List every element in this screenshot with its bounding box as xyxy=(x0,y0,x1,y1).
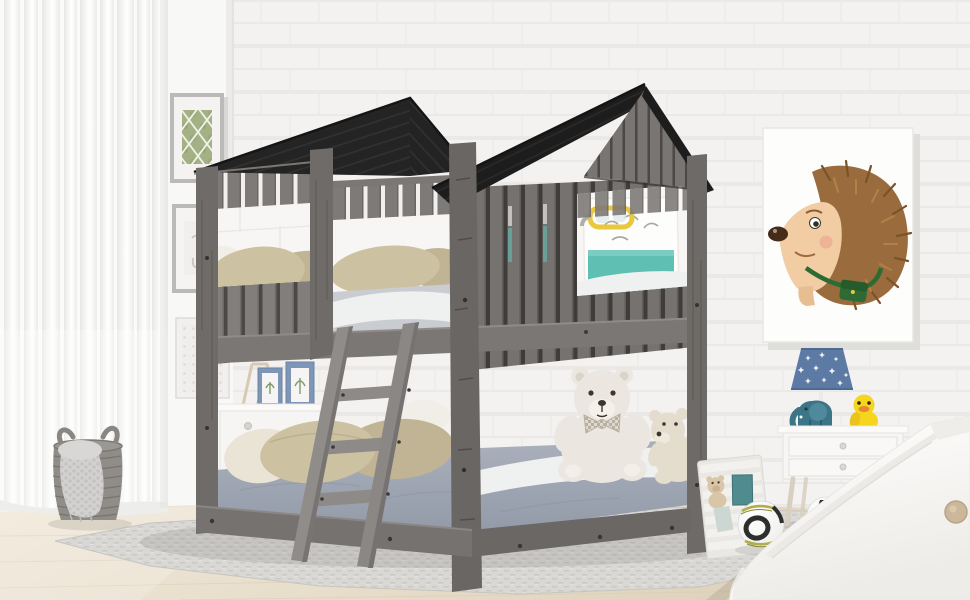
photo-frame-blue-1 xyxy=(258,368,282,408)
hedgehog-pupil xyxy=(813,221,819,227)
hedgehog-nose xyxy=(768,227,788,242)
elephant-eye xyxy=(804,407,807,410)
nose-highlight xyxy=(773,229,777,233)
drawer-knob-1 xyxy=(840,443,846,449)
teal-card xyxy=(732,475,753,505)
bed-post-mid xyxy=(310,148,333,360)
trellis-art xyxy=(182,110,212,164)
dresser-knob xyxy=(245,423,252,430)
hedgehog-cheek xyxy=(820,236,833,249)
slide-knob xyxy=(945,501,967,523)
drawer-knob-2 xyxy=(840,464,846,470)
nightstand-top xyxy=(778,426,908,433)
sheer-curtain-window xyxy=(0,0,168,516)
photo-frame-blue-2 xyxy=(286,362,314,408)
bed-post-left xyxy=(196,166,218,534)
hedgehog-poster xyxy=(763,128,920,350)
slide-knob-highlight xyxy=(950,506,957,513)
elephant-ear xyxy=(809,403,827,421)
upper-window-right xyxy=(577,176,691,298)
scene-canvas xyxy=(0,0,970,600)
curtain-edge-shade xyxy=(160,0,168,508)
dresser-top xyxy=(216,404,324,411)
towel-fold xyxy=(58,440,102,460)
bunk-bed xyxy=(194,84,714,592)
elephant-tusk xyxy=(800,416,803,419)
duck-beak xyxy=(859,406,870,412)
bedroom-product-photo xyxy=(0,0,970,600)
satchel-bag xyxy=(839,279,869,303)
